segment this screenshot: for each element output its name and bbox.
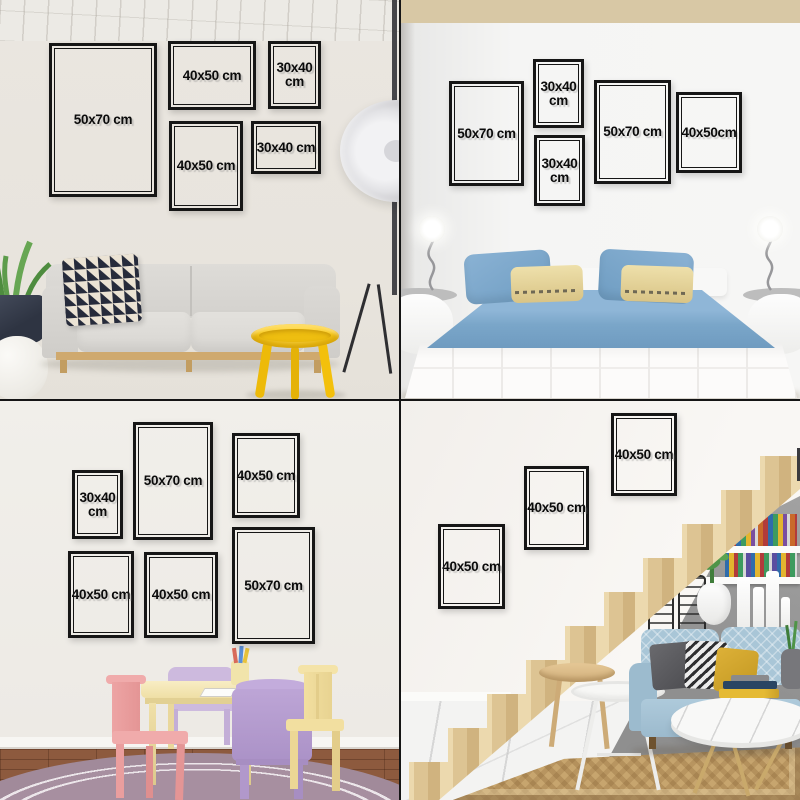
size-frame-40x50: 40x50cm (676, 92, 742, 173)
pencil (242, 648, 249, 664)
whitewashed-floor (0, 0, 399, 41)
bedroom-quadrant: 50x70 cm 30x40 cm 30x40 cm 50x70 cm 40x5… (401, 0, 800, 399)
frame-size-label: 30x40 cm (257, 141, 315, 155)
yellow-chair-leg (332, 731, 340, 791)
frame-size-label: 50x70 cm (74, 113, 132, 127)
book-stack-blue (723, 681, 777, 689)
wood-stool-top (539, 663, 615, 682)
frame-size-label: 30x40 cm (79, 491, 115, 519)
tan-pillow-right (620, 265, 693, 303)
frame-size-label: 40x50 cm (152, 588, 210, 602)
frame-size-label: 50x70 cm (603, 125, 661, 139)
kids-room-quadrant: 30x40 cm 50x70 cm 40x50 cm 40x50 cm 40x5… (0, 401, 399, 800)
frame-size-label: 40x50 cm (183, 69, 241, 83)
grey-vase (781, 649, 800, 689)
size-frame-50x70: 50x70 cm (594, 80, 671, 184)
yellow-chair-leg (290, 731, 298, 789)
size-frame-50x70: 50x70 cm (232, 527, 315, 644)
frame-size-collage: 50x70 cm 40x50 cm 30x40 cm 40x50 cm 30x4… (0, 0, 800, 800)
size-frame-30x40: 30x40 cm (268, 41, 321, 109)
pink-chair-leg (116, 744, 124, 798)
pink-chair-back (112, 682, 140, 738)
table-lamp-bulb-right (757, 216, 783, 242)
sofa-leg (60, 360, 67, 373)
frame-size-label: 30x40 cm (540, 80, 576, 108)
lavender-chair-leg (224, 709, 230, 745)
frame-size-label: 40x50 cm (527, 501, 585, 515)
size-frame-40x50: 40x50 cm (144, 552, 218, 638)
lamp-tripod-leg (377, 284, 392, 374)
size-frame-30x40: 30x40 cm (534, 135, 585, 206)
sofa-back-seam (190, 266, 192, 316)
table-lamp-bulb-left (419, 216, 445, 242)
sofa-leg (785, 737, 792, 749)
size-frame-40x50: 40x50 cm (168, 41, 256, 110)
size-frame-40x50: 40x50 cm (68, 551, 134, 638)
frame-size-label: 30x40 cm (276, 61, 312, 89)
tan-pillow-left (510, 265, 583, 303)
triangle-pattern-pillow (62, 253, 143, 326)
pink-chair-leg (146, 746, 153, 798)
yellow-chair-slat (316, 674, 319, 720)
size-frame-30x40: 30x40 cm (533, 59, 584, 128)
frame-size-label: 50x70 cm (457, 127, 515, 141)
frame-size-label: 40x50 cm (442, 560, 500, 574)
white-planter (0, 336, 48, 399)
pink-chair-seat (112, 731, 188, 744)
size-frame-40x50: 40x50 cm (611, 413, 677, 496)
lamp-tripod-leg (342, 283, 370, 372)
size-frame-40x50: 40x50 cm (524, 466, 589, 550)
bed-platform (405, 342, 797, 398)
pencil (232, 648, 238, 663)
candle (753, 587, 764, 629)
frame-size-label: 40x50 cm (177, 159, 235, 173)
wall-corner-shade (401, 0, 415, 330)
marble-coffee-table-top (671, 697, 800, 743)
stool-leg (291, 346, 299, 399)
size-frame-40x50: 40x50 cm (438, 524, 505, 609)
sofa-leg (649, 737, 656, 749)
frame-size-label: 50x70 cm (244, 579, 302, 593)
yellow-stool-tray (259, 329, 331, 342)
candle (766, 571, 779, 629)
white-stool-crossbar (597, 753, 641, 756)
books-row (725, 553, 797, 577)
frame-size-label: 50x70 cm (144, 474, 202, 488)
yellow-chair-seat (286, 719, 344, 731)
living-room-quadrant: 50x70 cm 40x50 cm 30x40 cm 40x50 cm 30x4… (0, 0, 399, 399)
bedroom-floor (401, 0, 800, 23)
size-frame-40x50: 40x50 cm (232, 433, 300, 518)
size-frame-30x40: 30x40 cm (72, 470, 123, 539)
size-frame-30x40: 30x40 cm (251, 121, 321, 174)
book-stack-yellow (719, 689, 779, 698)
staircase-room-quadrant: 40x50 cm 40x50 cm 40x50 cm (401, 401, 800, 800)
candle (737, 577, 750, 629)
sofa-leg (186, 360, 192, 372)
frame-size-label: 40x50cm (682, 126, 737, 140)
purple-chair-leg (240, 765, 249, 799)
size-frame-50x70: 50x70 cm (133, 422, 213, 540)
frame-size-label: 40x50 cm (237, 469, 295, 483)
frame-size-label: 40x50 cm (72, 588, 130, 602)
size-frame-40x50: 40x50 cm (169, 121, 243, 211)
frame-size-label: 40x50 cm (615, 448, 673, 462)
size-frame-50x70: 50x70 cm (449, 81, 524, 186)
frame-size-label: 30x40 cm (541, 157, 577, 185)
white-vase (697, 583, 731, 625)
size-frame-50x70: 50x70 cm (49, 43, 157, 197)
sofa-wood-base (56, 352, 326, 360)
